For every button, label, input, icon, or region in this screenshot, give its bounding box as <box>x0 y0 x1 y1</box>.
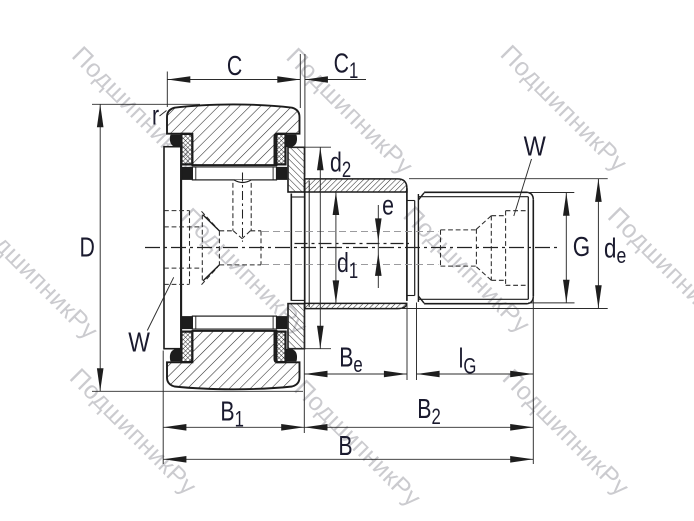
svg-text:G: G <box>573 232 590 263</box>
svg-text:e: e <box>382 190 394 222</box>
svg-text:D: D <box>80 232 95 264</box>
svg-text:C: C <box>227 50 242 82</box>
svg-text:r: r <box>152 100 159 132</box>
svg-text:W: W <box>128 327 150 358</box>
svg-text:W: W <box>524 131 547 161</box>
svg-text:B: B <box>338 430 352 462</box>
